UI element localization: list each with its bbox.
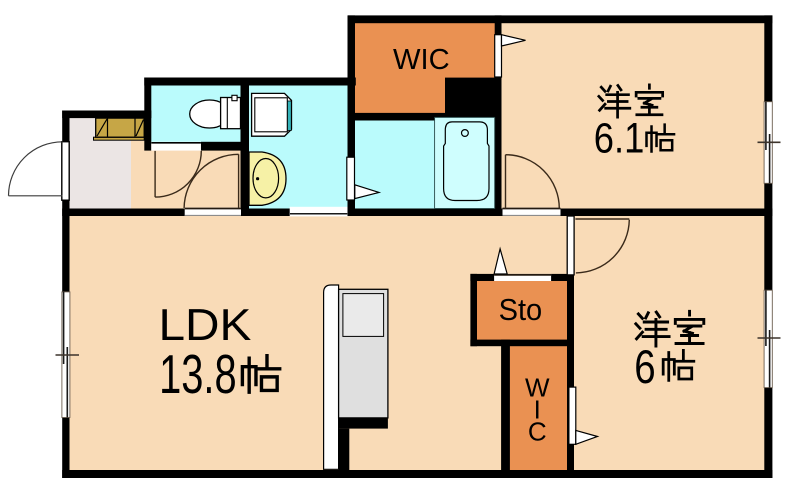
svg-text:Sto: Sto <box>499 293 543 327</box>
svg-text:6: 6 <box>634 341 655 394</box>
svg-text:C: C <box>528 417 547 447</box>
svg-text:13.8: 13.8 <box>159 343 237 405</box>
svg-text:WIC: WIC <box>393 44 450 76</box>
svg-text:6.1: 6.1 <box>594 115 645 163</box>
